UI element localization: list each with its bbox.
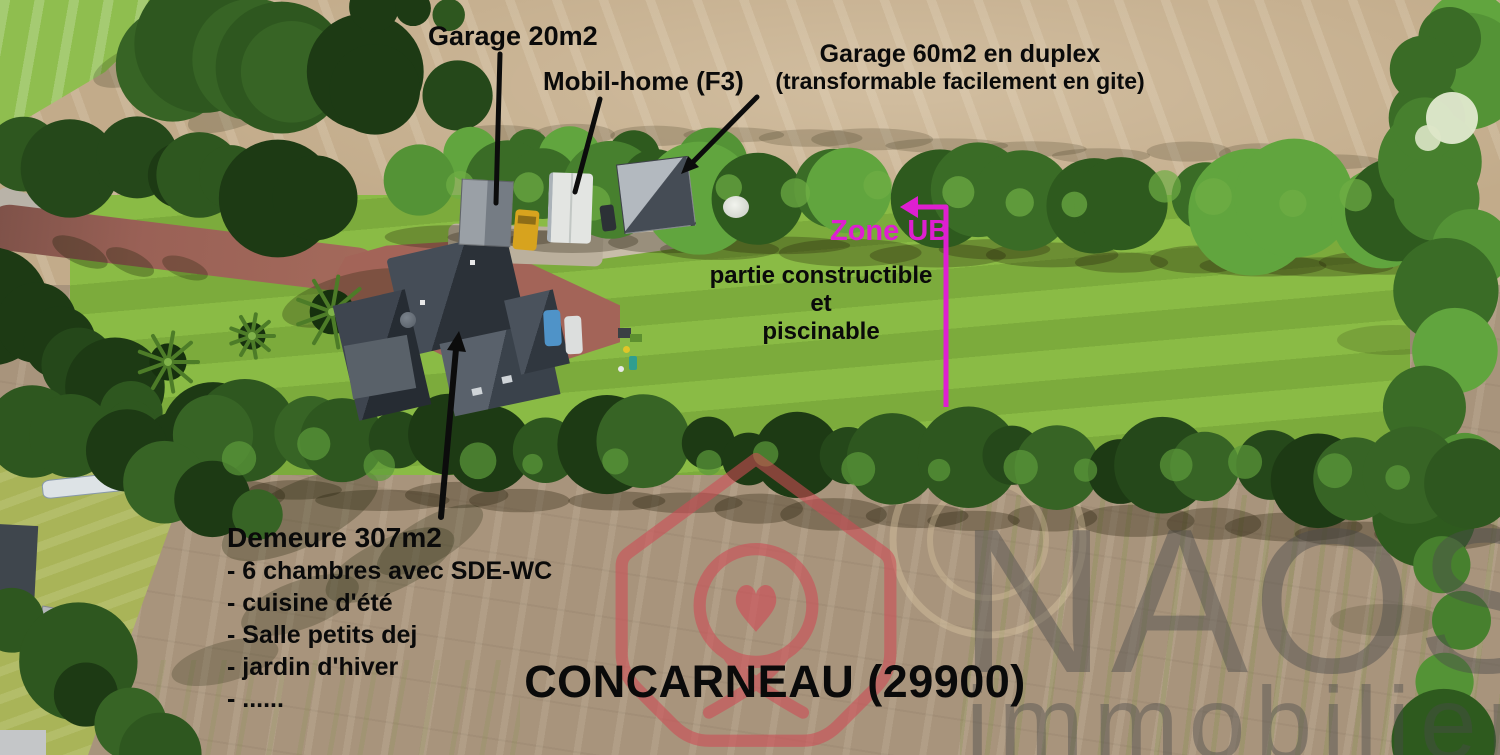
garage-60m2-building bbox=[616, 156, 696, 234]
label-constructible-line2: et bbox=[695, 290, 947, 318]
garage-20m2-building bbox=[458, 179, 513, 248]
blue-car bbox=[543, 310, 562, 347]
house-annex-roof bbox=[344, 335, 416, 399]
demeure-feature: - 6 chambres avec SDE-WC bbox=[227, 555, 552, 587]
demeure-feature: - cuisine d'été bbox=[227, 587, 552, 619]
label-demeure-title: Demeure 307m2 bbox=[227, 521, 552, 555]
demeure-feature: - Salle petits dej bbox=[227, 619, 552, 651]
label-garage20: Garage 20m2 bbox=[428, 21, 598, 52]
garden-mat bbox=[630, 334, 642, 342]
label-garage60-line1: Garage 60m2 en duplex bbox=[745, 40, 1175, 68]
chimney bbox=[420, 300, 425, 305]
neighbor-roof-corner bbox=[0, 730, 46, 755]
label-constructible-line1: partie constructible bbox=[695, 262, 947, 290]
yellow-ball bbox=[623, 346, 630, 353]
label-zone-ub: Zone UB bbox=[830, 215, 949, 248]
boat-trailer bbox=[41, 472, 129, 500]
neighbor-building bbox=[0, 524, 38, 612]
teal-lounger bbox=[629, 356, 637, 370]
label-constructible-line3: piscinable bbox=[695, 318, 947, 346]
mobil-home-building bbox=[547, 172, 593, 243]
field-crop-rows bbox=[960, 495, 1500, 755]
shed-roof bbox=[34, 605, 97, 660]
aerial-photo-scene: NAOS immobilier Garage 20m2 Mobil-home (… bbox=[0, 0, 1500, 755]
white-ball bbox=[618, 366, 624, 372]
yellow-vehicle bbox=[512, 209, 539, 251]
label-garage60-line2: (transformable facilement en gite) bbox=[745, 68, 1175, 94]
label-constructible: partie constructible et piscinable bbox=[695, 262, 947, 346]
white-car bbox=[564, 316, 583, 355]
white-parasol bbox=[723, 196, 749, 218]
label-city: CONCARNEAU (29900) bbox=[420, 656, 1130, 708]
house-turret bbox=[400, 312, 416, 328]
label-mobilhome: Mobil-home (F3) bbox=[543, 66, 744, 97]
chimney bbox=[470, 260, 475, 265]
label-garage60: Garage 60m2 en duplex (transformable fac… bbox=[745, 40, 1175, 94]
